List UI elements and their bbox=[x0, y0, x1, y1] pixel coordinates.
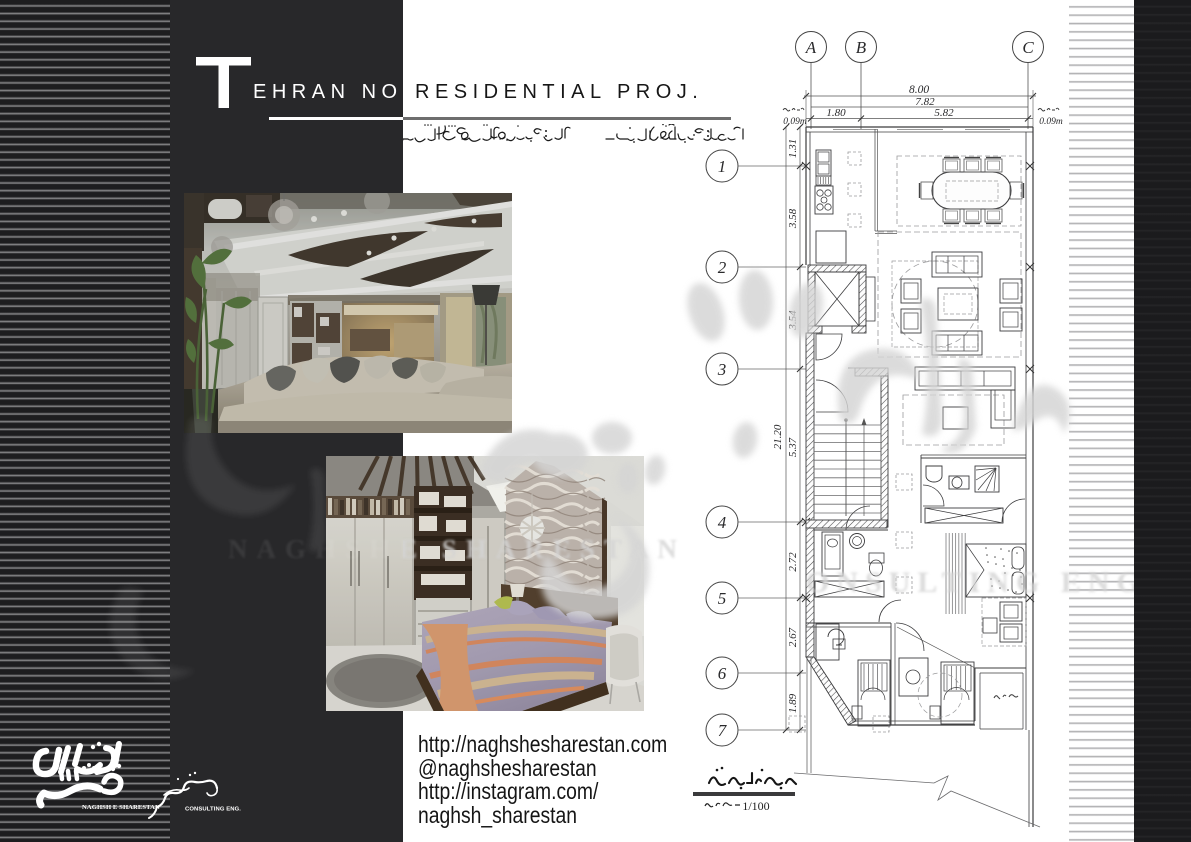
svg-text:NAGHSH E SHARESTAN: NAGHSH E SHARESTAN bbox=[82, 804, 160, 811]
svg-text:ONSULTING ENG.: ONSULTING ENG. bbox=[806, 566, 1161, 599]
svg-text:CONSULTING ENG.: CONSULTING ENG. bbox=[185, 807, 241, 813]
